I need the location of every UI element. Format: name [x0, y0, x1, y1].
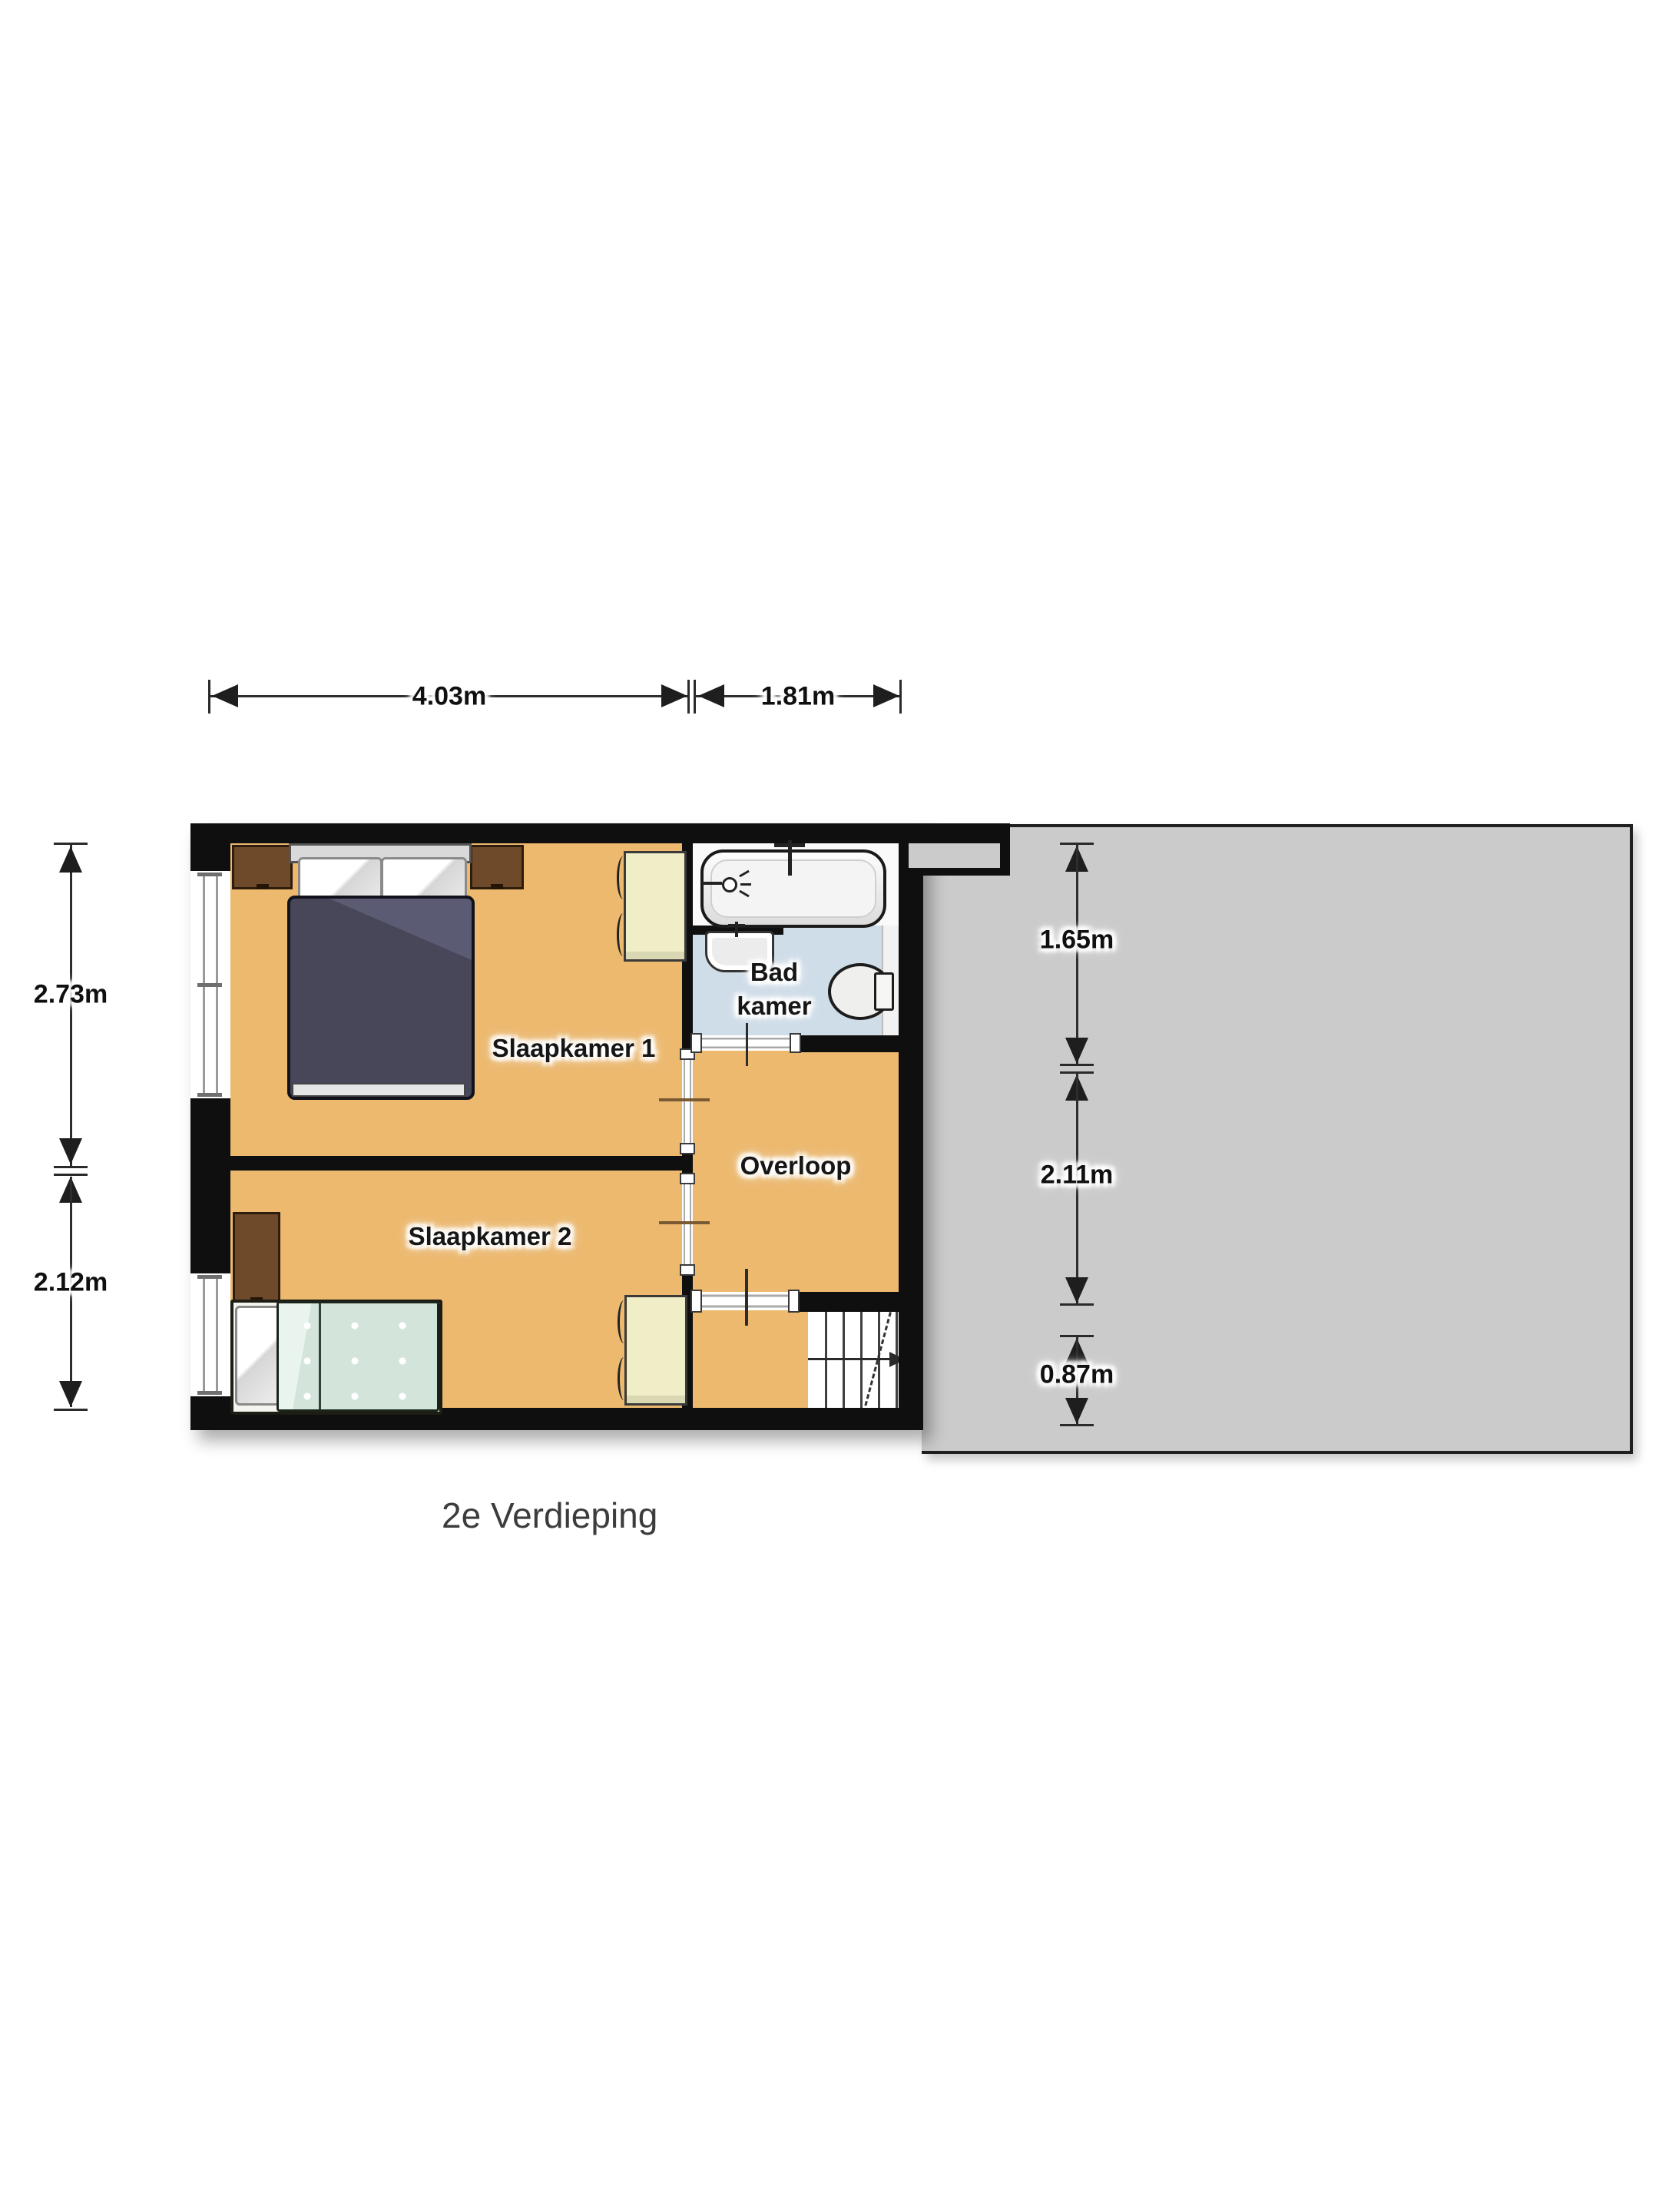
single-bed-duvet [276, 1301, 439, 1412]
dim-arrow [1065, 1277, 1088, 1303]
bedroom1-sliding-door [682, 1051, 693, 1152]
window [190, 871, 230, 1098]
dim-arrow [59, 1381, 82, 1407]
dim-arrow [59, 1138, 82, 1164]
dim-tick [54, 1174, 88, 1176]
wall-divider-stub [682, 1152, 693, 1175]
landing-label: Overloop [740, 1151, 852, 1181]
toilet-tank [874, 972, 894, 1011]
wall-top [190, 823, 1010, 843]
bathroom-label-line2: kamer [737, 992, 811, 1021]
double-bed-duvet [287, 896, 475, 1100]
dim-label-right-height-1: 1.65m [1040, 926, 1114, 955]
dim-tick [1060, 1303, 1094, 1306]
wall-above-stairs [796, 1292, 923, 1312]
shower-hose-icon [702, 882, 722, 885]
stairs-walk-line [808, 1358, 892, 1360]
nightstand [232, 845, 293, 889]
bedroom1-label: Slaapkamer 1 [492, 1034, 656, 1063]
bedroom1-door-tick [659, 1098, 710, 1101]
bedroom2-door-tick [659, 1221, 710, 1224]
window [190, 1273, 230, 1396]
floorplan-canvas: Slaapkamer 1 Slaapkamer 2 Bad kamer Over… [0, 0, 1659, 2212]
dim-arrow [1065, 1398, 1088, 1424]
double-bed-foot [292, 1083, 465, 1097]
dim-tick [694, 680, 696, 714]
bathroom-label-leader [746, 1023, 748, 1066]
wall-left-middle [190, 1098, 230, 1273]
wardrobe [624, 1295, 687, 1406]
dim-tick [687, 680, 690, 714]
dim-tick [54, 1409, 88, 1411]
dim-label-top-width-1: 4.03m [412, 682, 486, 712]
landing-floor-strip [693, 1310, 808, 1409]
dim-label-right-height-3: 0.87m [1040, 1360, 1114, 1390]
dim-label-top-width-2: 1.81m [761, 682, 835, 712]
basin-faucet-icon [728, 924, 745, 927]
wall-right [899, 823, 923, 1430]
wall-left-upper [190, 823, 230, 871]
dim-label-left-height-2: 2.12m [34, 1268, 108, 1298]
dim-arrow [59, 846, 82, 873]
bathroom-label-line1: Bad [750, 958, 798, 987]
window-glass [203, 1277, 218, 1392]
dim-arrow [661, 684, 687, 707]
dim-tick [54, 1166, 88, 1168]
bedroom2-label: Slaapkamer 2 [409, 1222, 572, 1251]
dim-arrow [698, 684, 724, 707]
shower-head-icon [722, 877, 737, 892]
window-cap [197, 1093, 222, 1097]
bedroom2-sliding-door [682, 1175, 693, 1273]
bathtub-faucet-icon [774, 843, 805, 847]
wall-between-bedrooms [230, 1156, 684, 1171]
stairs-door-tick [745, 1269, 748, 1326]
nightstand [470, 845, 524, 889]
dim-arrow [212, 684, 238, 707]
floor-title: 2e Verdieping [442, 1495, 657, 1536]
dim-tick [1060, 1424, 1094, 1426]
wall-bathroom-bottom [799, 1035, 899, 1052]
dim-label-left-height-1: 2.73m [34, 980, 108, 1010]
dim-tick [899, 680, 902, 714]
window-cap [197, 1275, 222, 1279]
window-cap [197, 983, 222, 987]
landing-floor [693, 1051, 899, 1310]
dim-label-right-height-2: 2.11m [1041, 1161, 1114, 1190]
window-cap [197, 873, 222, 876]
nightstand [233, 1212, 280, 1303]
wardrobe [624, 851, 687, 962]
dim-arrow [1065, 1038, 1088, 1064]
window-cap [197, 1391, 222, 1395]
dim-tick [54, 843, 88, 845]
dim-tick [1060, 1064, 1094, 1066]
flat-roof-area [922, 824, 1633, 1454]
dim-tick [208, 680, 210, 714]
dim-arrow [873, 684, 899, 707]
shower-spray-icon [740, 883, 751, 886]
roof-duct-inset [909, 843, 1000, 868]
